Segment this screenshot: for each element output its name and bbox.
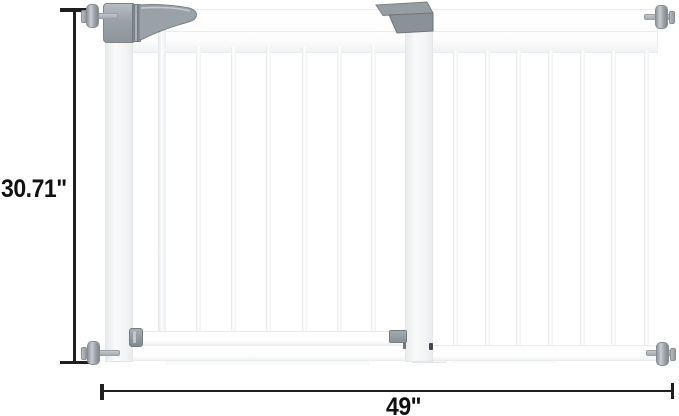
gate-bar [485,50,490,350]
gate-bar [302,46,307,336]
width-dimension-label: 49" [386,393,421,416]
gate-bar [644,50,649,350]
gate-bar [548,50,553,350]
spindle-wheel [656,342,669,366]
middle-post-latch-pin [429,343,433,350]
height-dimension-label: 30.71" [1,175,67,204]
width-dimension-cap-left [100,384,104,400]
spindle-flange [669,11,675,24]
spindle-rod [96,13,118,19]
gate-bar [266,46,271,336]
gate-bar [371,46,376,336]
gate-bottom-rail [105,345,658,361]
door-bottom-hinge [129,328,143,347]
width-dimension-cap-right [671,383,675,399]
door-bottom-hinge-pin [133,331,136,343]
door-hinge-stile [158,28,166,335]
height-dimension-cap-bottom [60,361,89,365]
gate-bar [196,46,201,336]
door-bottom-latch-pin [403,342,406,349]
gate-bar [611,50,616,350]
product-dimension-diagram: 30.71" 49" [0,0,679,416]
gate-bar [337,46,342,336]
spindle-wheel [86,4,99,28]
handle-lock-housing [103,3,134,43]
gate-bar [516,50,521,350]
width-dimension-line [101,390,673,393]
spindle-wheel [87,341,100,365]
gate-bar [231,46,236,336]
gate-bar [453,50,458,350]
spindle-wheel [655,5,668,29]
height-dimension-line [73,9,76,363]
gate-frame-post-middle [405,13,433,362]
gate-bar [580,50,585,350]
gate-frame-post-left [105,16,133,362]
door-bottom-rail [131,331,407,346]
spindle-flange [670,348,676,361]
gate-top-rail-seam [106,31,657,32]
handle-lock-knob [132,4,141,42]
